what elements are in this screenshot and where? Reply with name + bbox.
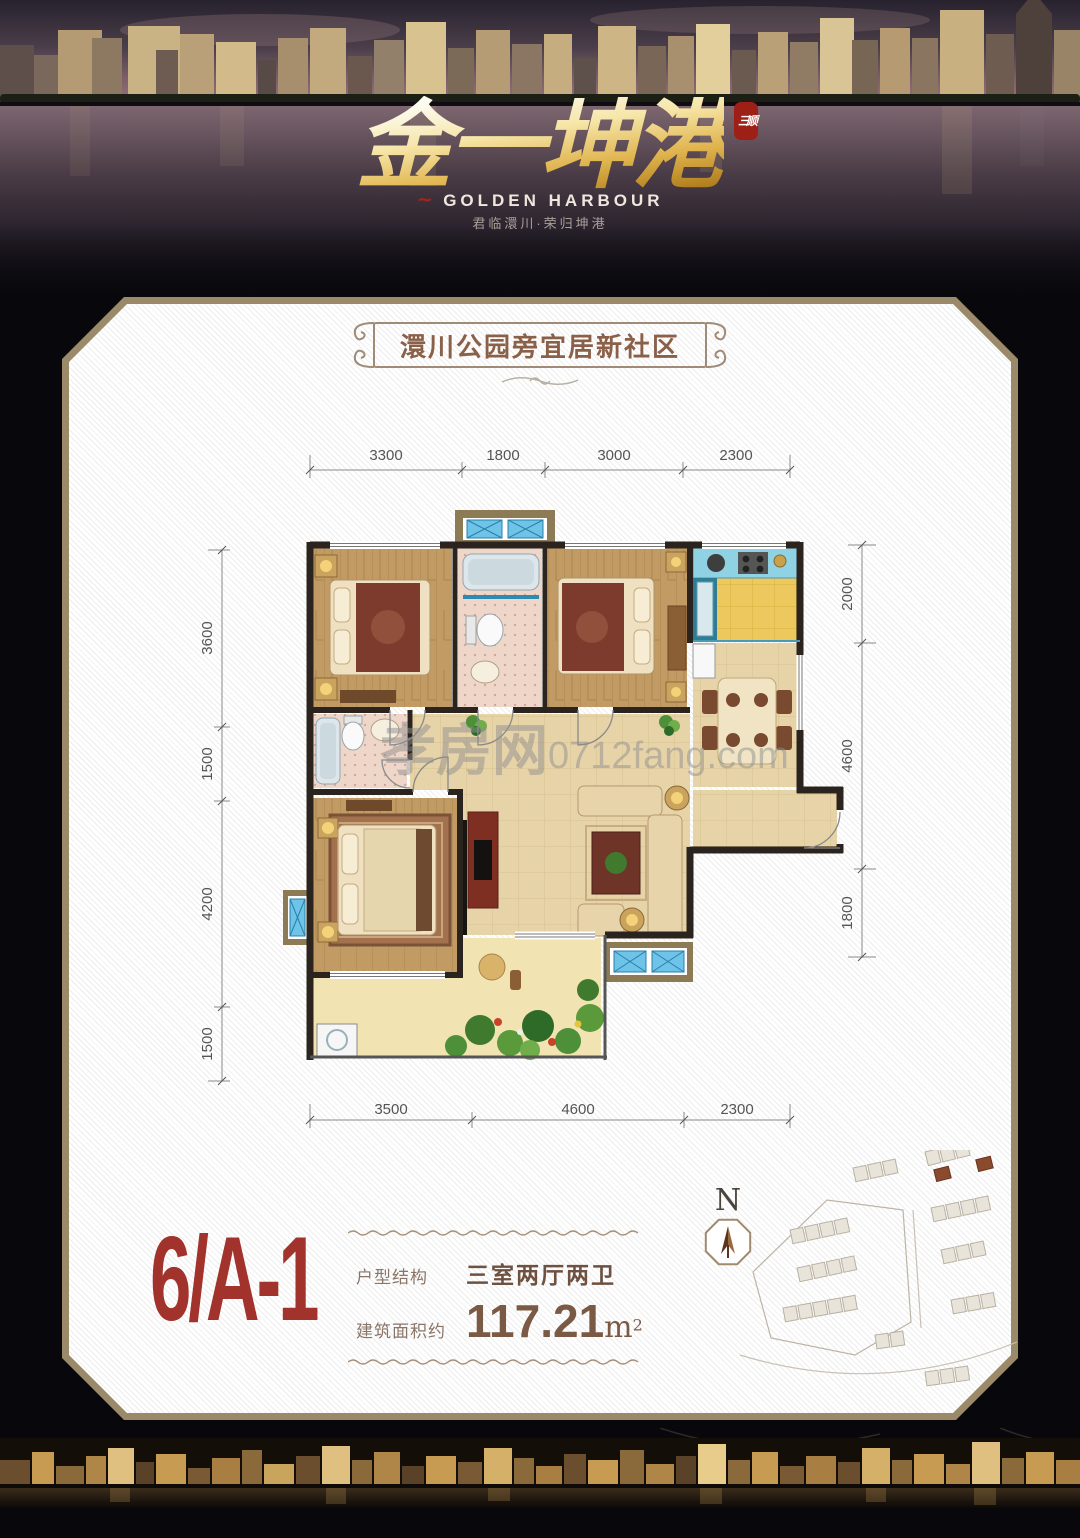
area-label: 建筑面积约	[356, 1317, 466, 1342]
plate	[726, 693, 740, 707]
floor-plan: 3300 1800 3000 2300 3600 1500 4200 1500 …	[180, 430, 900, 1165]
highlighted-building	[934, 1166, 951, 1181]
unit-code: 6/A-1	[150, 1216, 316, 1342]
kitchen-sink	[707, 554, 725, 572]
building-row	[875, 1331, 905, 1349]
flyer-page: 金一坤港 三顺 ~GOLDEN HARBOUR 君临澴川·荣归坤港 澴川公园旁宜…	[0, 0, 1080, 1538]
banner-title: 澴川公园旁宜居新社区	[400, 327, 680, 364]
dresser	[346, 800, 392, 811]
lamp-icon	[320, 683, 332, 695]
pillow	[342, 834, 358, 874]
window	[797, 655, 805, 730]
area-unit: m	[604, 1310, 632, 1345]
window	[565, 541, 665, 549]
duvet-motif	[371, 610, 405, 644]
spec-panel: 户型结构 三室两厅两卫 建筑面积约 117.21m2	[348, 1224, 658, 1371]
dim-label: 4600	[561, 1101, 594, 1118]
logo-group: 金一坤港 三顺 ~GOLDEN HARBOUR 君临澴川·荣归坤港	[0, 96, 1080, 232]
top-bay-window	[455, 510, 555, 547]
building-row	[931, 1196, 991, 1222]
building-row	[925, 1366, 970, 1386]
flourish-icon	[500, 372, 580, 390]
north-letter: N	[700, 1186, 756, 1216]
dim-label: 2300	[719, 447, 752, 464]
strip-water	[0, 1488, 1080, 1508]
dim-label: 2300	[720, 1101, 753, 1118]
shoreline	[0, 1484, 1080, 1488]
structure-label: 户型结构	[356, 1263, 466, 1288]
hero-photo: 金一坤港 三顺 ~GOLDEN HARBOUR 君临澴川·荣归坤港	[0, 0, 1080, 300]
lamp-icon	[671, 557, 681, 567]
wardrobe	[668, 606, 686, 670]
building-row	[925, 1150, 970, 1166]
duvet	[364, 829, 420, 931]
toilet-tank	[466, 616, 476, 644]
logo-tagline: 君临澴川·荣归坤港	[0, 213, 1080, 232]
wavy-bottom-icon	[348, 1358, 648, 1366]
lamp-icon	[322, 822, 334, 834]
washing-machine	[317, 1024, 357, 1056]
site-map	[735, 1150, 1020, 1395]
bathtub-basin	[468, 559, 534, 585]
pillow	[634, 588, 650, 622]
pillow	[334, 588, 350, 622]
building-footprints	[783, 1150, 996, 1386]
wavy-top-icon	[348, 1229, 648, 1237]
building-row	[790, 1218, 850, 1244]
blanket	[416, 829, 432, 931]
dim-label: 1500	[199, 1027, 216, 1060]
bottom-bay-window	[605, 942, 693, 982]
stool	[510, 970, 521, 990]
logo-calligraphy: 金一坤港	[356, 89, 724, 202]
shower-rail	[463, 595, 539, 599]
sofa	[578, 786, 662, 816]
dim-label: 1800	[486, 447, 519, 464]
duvet-motif	[576, 611, 608, 643]
structure-value: 三室两厅两卫	[466, 1256, 616, 1290]
dim-label: 1500	[199, 747, 216, 780]
dim-label: 1800	[839, 896, 856, 929]
scroll-right-icon	[705, 320, 731, 370]
building-row	[951, 1293, 996, 1314]
sink	[471, 661, 499, 683]
banner-frame: 澴川公园旁宜居新社区	[373, 322, 707, 368]
pot	[774, 555, 786, 567]
lamp-icon	[320, 560, 332, 572]
logo-main-text: 金一坤港 三顺	[356, 96, 724, 197]
table-plant	[605, 852, 627, 874]
window	[330, 541, 440, 549]
stove	[738, 552, 768, 574]
lamp-icon	[626, 914, 638, 926]
building-row	[853, 1159, 898, 1182]
building-row	[941, 1241, 986, 1264]
building-row	[783, 1295, 857, 1321]
highlighted-building	[976, 1156, 993, 1171]
chair	[702, 690, 718, 714]
toilet	[477, 614, 503, 646]
scroll-left-icon	[349, 320, 375, 370]
building-row	[797, 1256, 857, 1282]
area-exponent: 2	[633, 1316, 643, 1335]
plate	[754, 693, 768, 707]
window	[330, 971, 445, 979]
compass-octagon-icon	[702, 1216, 754, 1268]
bathtub-basin	[320, 723, 336, 779]
dim-label: 4200	[199, 887, 216, 920]
dim-label: 2000	[839, 577, 856, 610]
round-table	[479, 954, 505, 980]
bottom-skyline	[0, 1428, 1080, 1532]
armchair	[578, 904, 624, 936]
foyer-floor	[693, 790, 837, 847]
dim-label: 3500	[374, 1101, 407, 1118]
lamp-icon	[671, 687, 681, 697]
cloud	[590, 6, 930, 34]
window	[515, 932, 595, 940]
fridge	[693, 644, 715, 678]
pillow	[342, 884, 358, 924]
lamp-icon	[671, 792, 683, 804]
lamp-icon	[322, 926, 334, 938]
tv-panel	[474, 840, 492, 880]
dim-label: 3000	[597, 447, 630, 464]
compass: N	[700, 1186, 756, 1273]
pillow	[334, 630, 350, 664]
hero-fade	[0, 225, 1080, 300]
pillow	[634, 630, 650, 664]
living-room	[578, 786, 689, 937]
sofa-long	[648, 815, 682, 937]
dim-label: 4600	[839, 739, 856, 772]
window	[702, 541, 786, 549]
dim-label: 3600	[199, 621, 216, 654]
logo-red-seal: 三顺	[734, 102, 758, 140]
chair	[776, 690, 792, 714]
toilet	[342, 722, 364, 750]
banner: 澴川公园旁宜居新社区	[373, 322, 707, 368]
watermark-url: 0712fang.com	[548, 735, 789, 777]
cabinet-door	[697, 582, 713, 636]
dim-label: 3300	[369, 447, 402, 464]
area-value: 117.21	[466, 1295, 604, 1347]
watermark-name: 孝房网	[380, 719, 548, 782]
dresser	[340, 690, 396, 703]
